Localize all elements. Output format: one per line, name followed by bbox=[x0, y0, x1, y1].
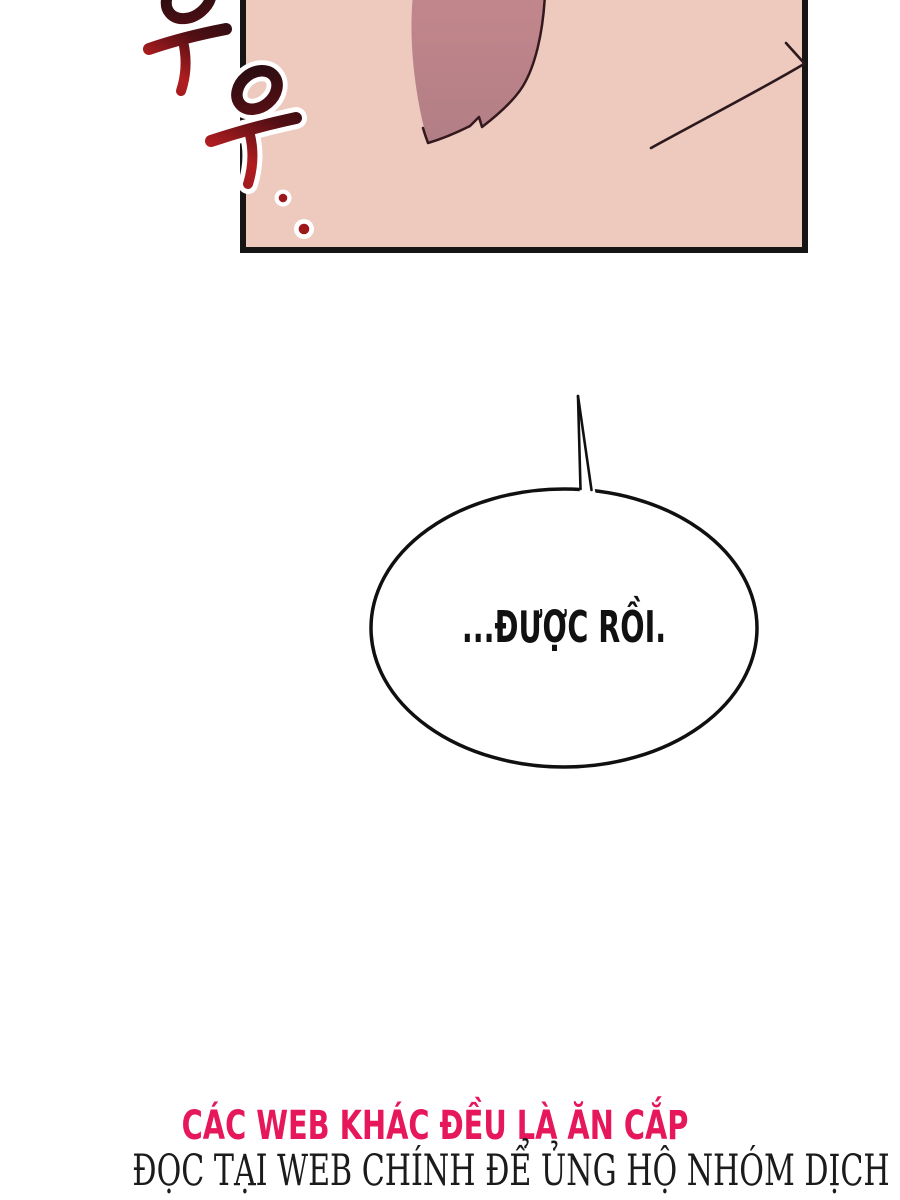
sfx-woo-glyph-1 bbox=[149, 0, 226, 91]
footer-support-line: ĐỌC TẠI WEB CHÍNH ĐỂ ỦNG HỘ NHÓM DỊCH bbox=[132, 1150, 749, 1193]
comic-art-canvas bbox=[0, 0, 900, 1200]
bubble-dialogue-text: ...ĐƯỢC RỒI. bbox=[434, 606, 694, 650]
footer-warning-line: CÁC WEB KHÁC ĐỀU LÀ ĂN CẮP bbox=[122, 1106, 748, 1146]
comic-page: ...ĐƯỢC RỒI. CÁC WEB KHÁC ĐỀU LÀ ĂN CẮP … bbox=[0, 0, 900, 1200]
